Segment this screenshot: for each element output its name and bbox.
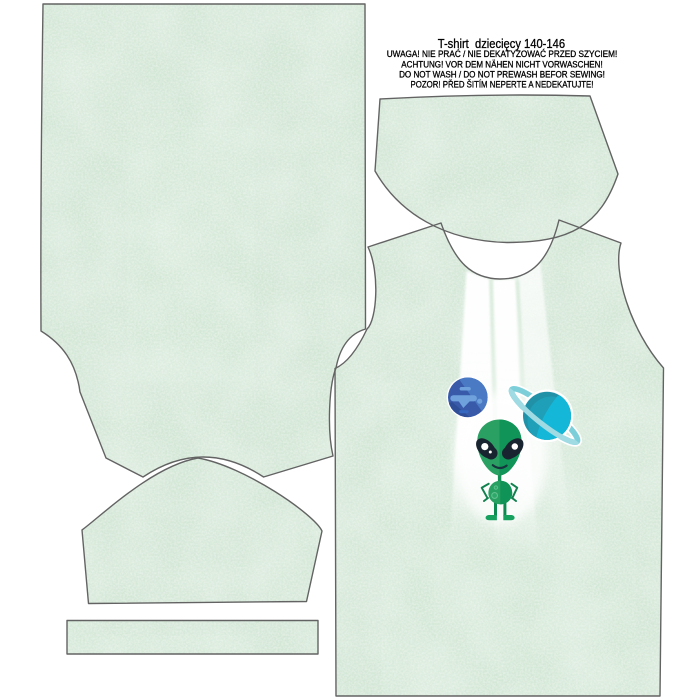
- svg-text:DO NOT WASH / DO NOT PREWASH B: DO NOT WASH / DO NOT PREWASH BEFOR SEWIN…: [399, 70, 605, 80]
- svg-text:POZOR! PŘED ŠITÍM NEPERTE A NE: POZOR! PŘED ŠITÍM NEPERTE A NEDEKATUJTE!: [411, 80, 594, 90]
- svg-text:ACHTUNG! VOR DEM NÄHEN NICHT V: ACHTUNG! VOR DEM NÄHEN NICHT VORWASCHEN!: [401, 59, 602, 69]
- svg-text:UWAGA! NIE PRAĆ / NIE DEKATYZO: UWAGA! NIE PRAĆ / NIE DEKATYZOWAĆ PRZED …: [387, 49, 618, 59]
